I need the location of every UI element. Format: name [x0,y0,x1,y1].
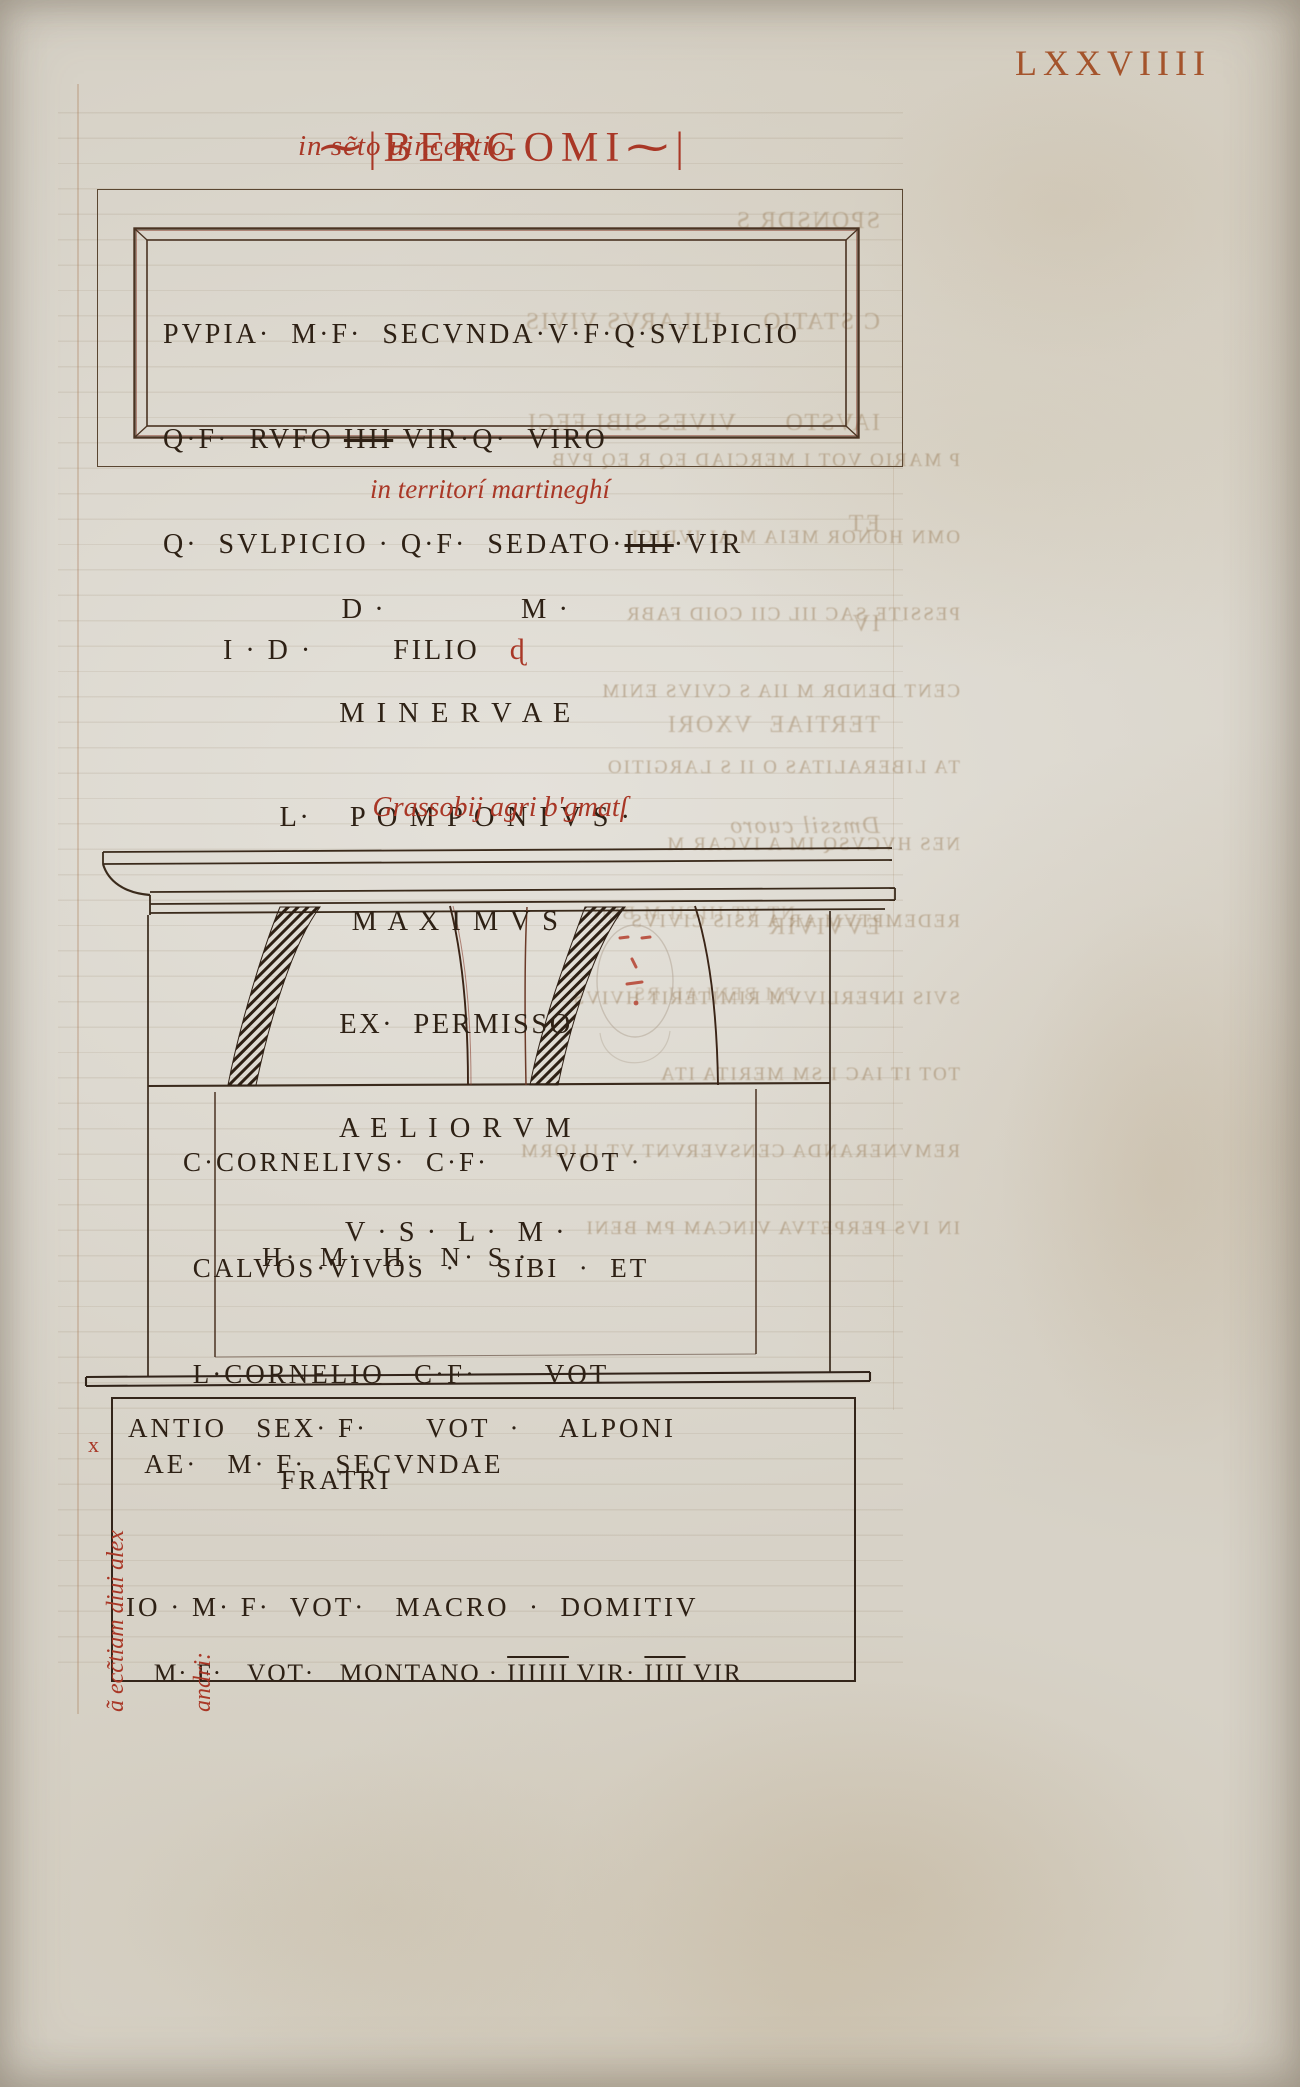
parchment-stain [560,1680,1200,2087]
inscription-line: PVPIA· M·F· SECVNDA·V·F·Q·SVLPICIO [163,317,800,352]
manuscript-page: SPONSDR S C STATIO HILARVS VIVIS IAVSTO … [0,0,1300,2087]
margin-note: ã ecc̃tiam diui alex andri: [44,1372,276,1712]
margin-note-line: andri: [189,1372,218,1712]
caption-territori: in territorí martineghí [290,474,690,505]
inscription-line: M I N E R V A E [233,697,679,732]
title-swash-right: ⁓| [626,125,690,171]
arch-edge-right [695,906,718,1085]
margin-note-line: ã ecc̃tiam diui alex [102,1372,131,1712]
overlined-numeral: IIII [644,1658,685,1687]
inscription-text-segment: VIR [686,1658,743,1687]
inscription-text-segment: Q·F· RVFO [163,424,344,455]
caption-grassobii: Grassobij agri b'gmatſ [300,792,700,824]
parchment-stain [1000,900,1300,1460]
inscription-line: M A X I M V S [233,905,679,940]
monument-inscription-formula: H· M· H· N· S · [262,1242,530,1273]
inscription-line: EX· PERMISSO [233,1008,679,1043]
folio-number: LXXVIIII [1015,42,1275,84]
inscription-text-segment: VIR·Q· VIRO [393,424,608,455]
inscription-text-segment: ·VIR [674,529,744,560]
inscription-line: D · M · [233,593,679,628]
inscription-line: Q·F· RVFO IIII VIR·Q· VIRO [163,422,800,457]
inscription-line: C·CORNELIVS· C·F· VOT · [183,1145,649,1180]
parchment-stain [120,1750,640,2070]
parchment-stain [850,60,1270,360]
page-subtitle: in sc̃to uincentio [298,130,507,163]
struck-numeral: IIII [344,424,393,455]
overlined-numeral: IIIIII [507,1658,569,1687]
inscription-text-segment: VIR· [569,1658,645,1687]
